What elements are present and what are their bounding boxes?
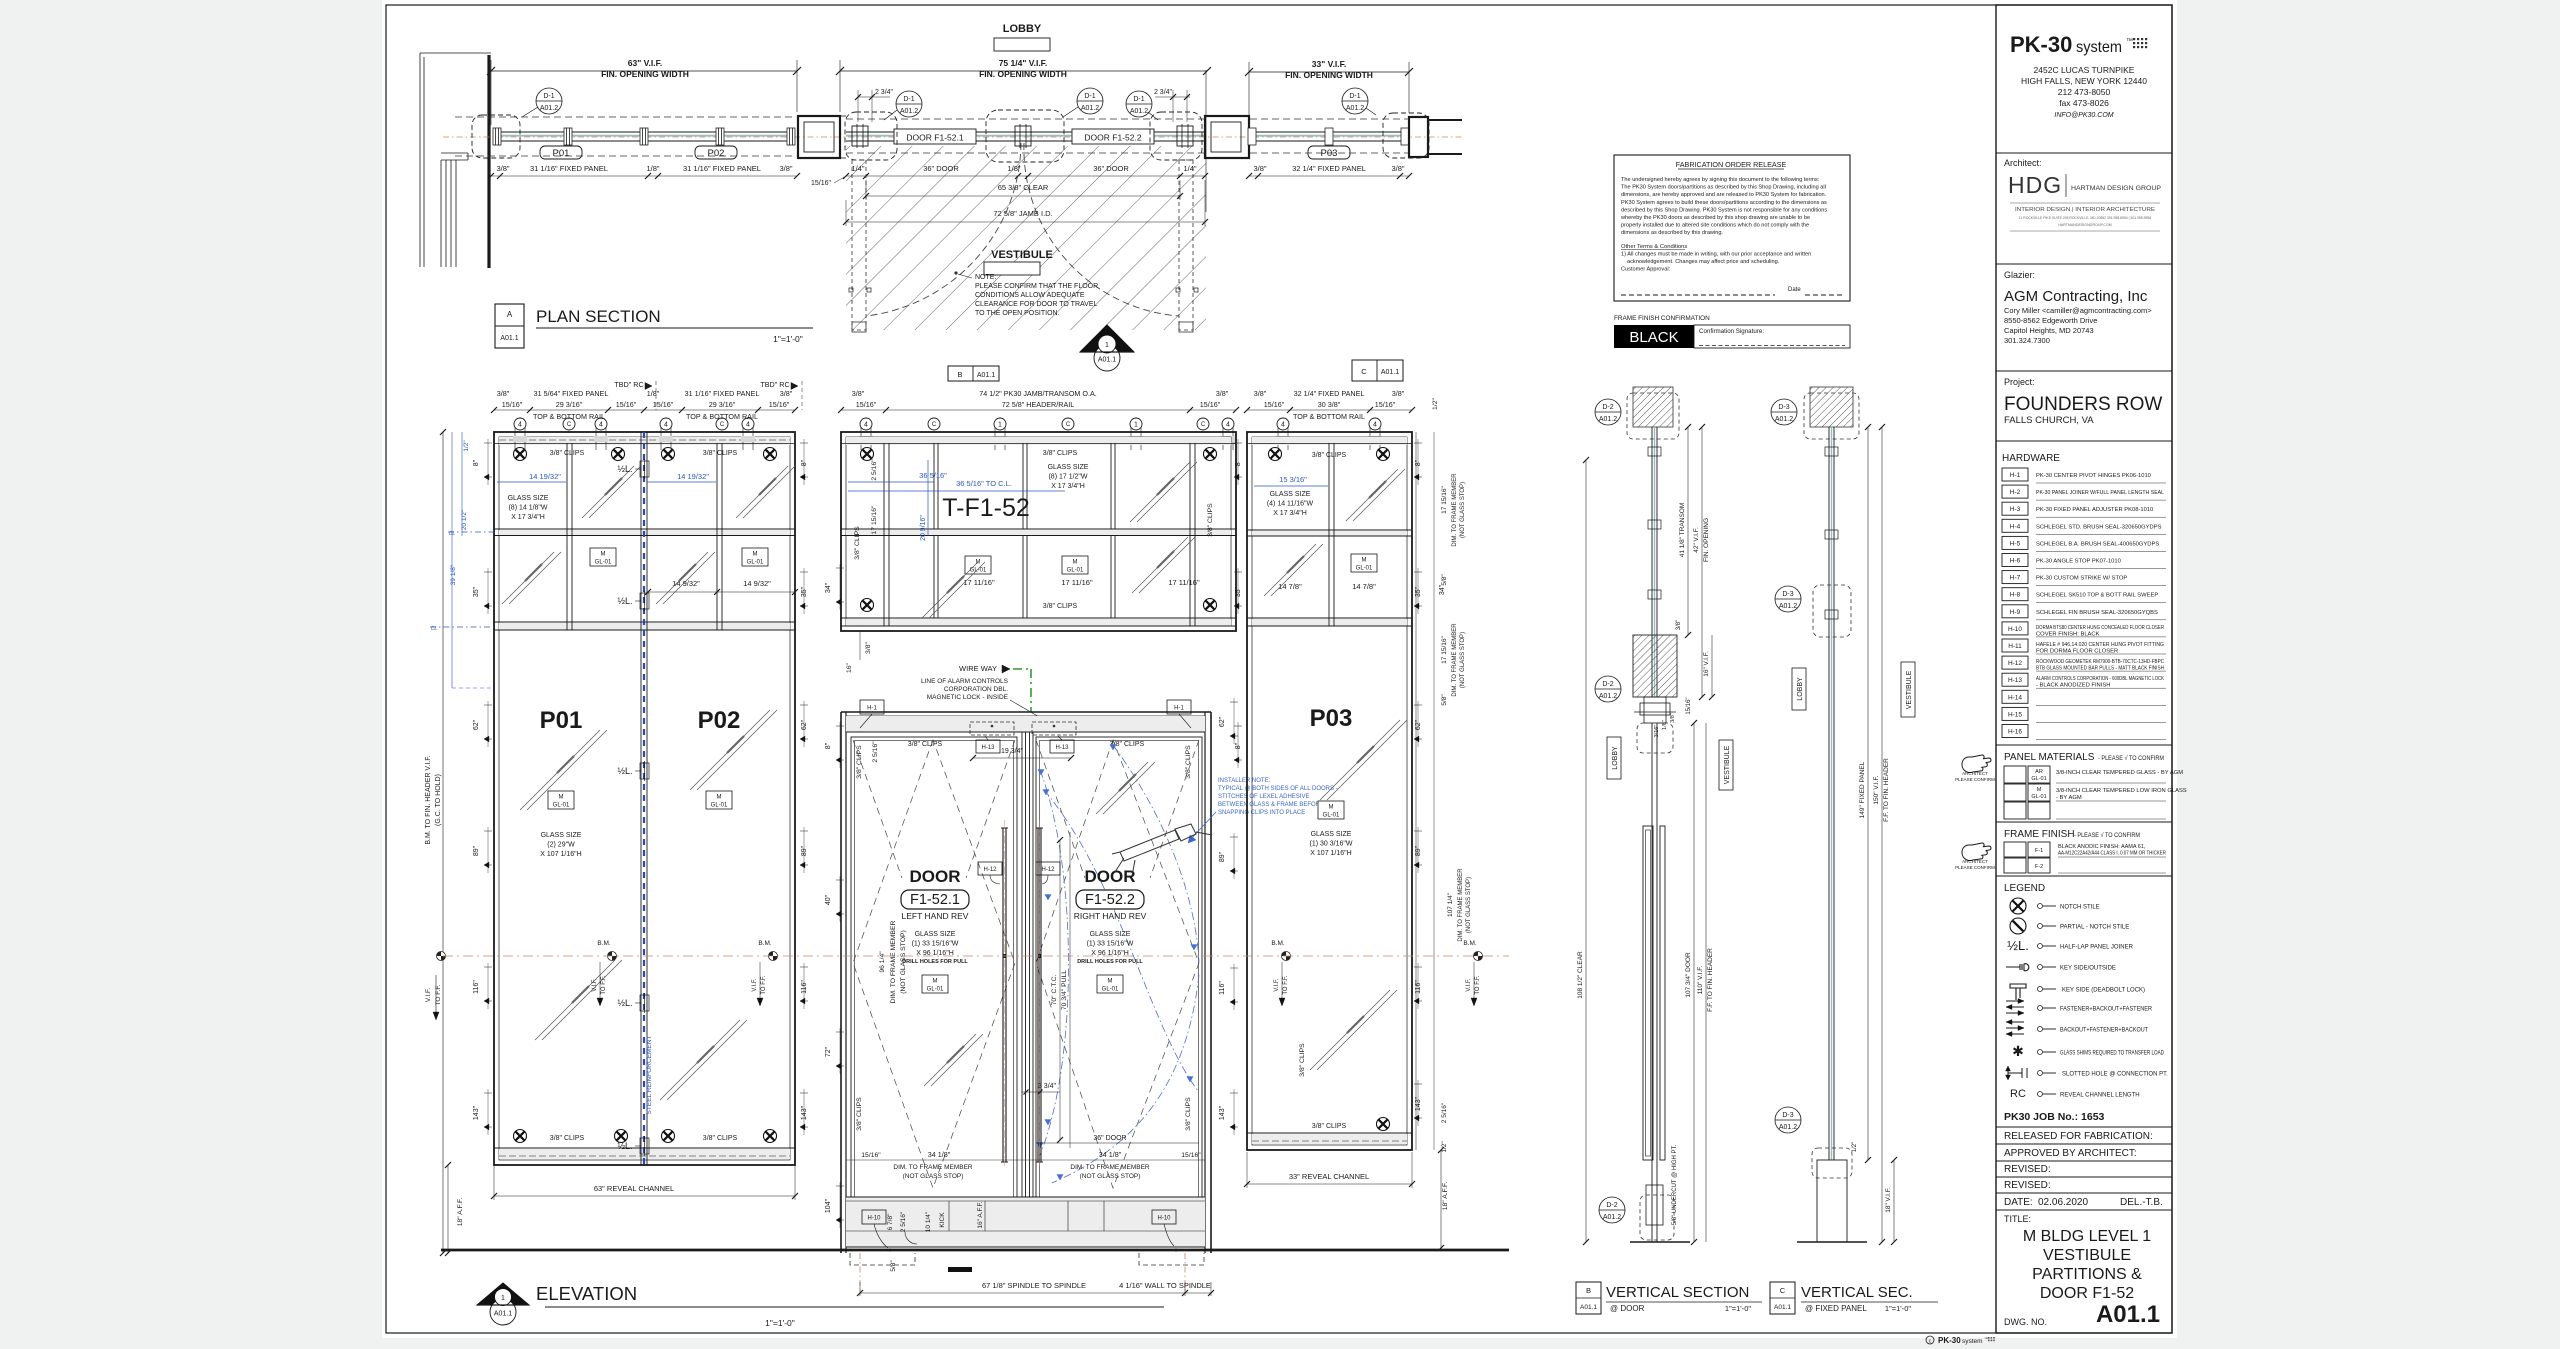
svg-text:HARTMAN DESIGN GROUP: HARTMAN DESIGN GROUP	[2071, 185, 2161, 192]
svg-text:GL-01: GL-01	[711, 803, 728, 809]
svg-text:3/8": 3/8"	[1392, 389, 1405, 398]
svg-text:17 15/16": 17 15/16"	[1441, 486, 1448, 514]
svg-text:SLOTTED HOLE @ CONNECTION PT.: SLOTTED HOLE @ CONNECTION PT.	[2062, 1072, 2168, 1078]
svg-text:Date: Date	[1788, 287, 1801, 293]
svg-text:11 ROCKVILLE PIKE SUITE 205 R: 11 ROCKVILLE PIKE SUITE 205 ROCKVILLE, M…	[2019, 216, 2151, 220]
svg-text:36" DOOR: 36" DOOR	[1093, 1135, 1126, 1142]
svg-text:C: C	[720, 422, 725, 428]
svg-text:6 7/8": 6 7/8"	[887, 1213, 894, 1230]
svg-text:BLACK: BLACK	[1629, 329, 1678, 346]
svg-text:PK30 JOB No.: 1653: PK30 JOB No.: 1653	[2004, 1111, 2105, 1123]
svg-text:D-2: D-2	[1602, 681, 1613, 688]
svg-text:- PLEASE √ TO CONFIRM: - PLEASE √ TO CONFIRM	[2074, 831, 2140, 839]
svg-text:H-9: H-9	[2010, 609, 2021, 616]
svg-text:3/8": 3/8"	[497, 389, 510, 398]
svg-text:4: 4	[664, 422, 668, 429]
svg-text:(NOT GLASS STOP): (NOT GLASS STOP)	[1080, 1173, 1141, 1180]
svg-text:3/8" CLIPS: 3/8" CLIPS	[1185, 745, 1192, 779]
svg-text:LEGEND: LEGEND	[2004, 883, 2045, 894]
svg-text:TO F.F.: TO F.F.	[761, 975, 767, 995]
svg-text:B: B	[957, 370, 962, 379]
svg-text:A01.1: A01.1	[1098, 357, 1116, 364]
svg-text:65 3/8" CLEAR: 65 3/8" CLEAR	[998, 183, 1049, 192]
svg-text:(1) 30 3/16"W: (1) 30 3/16"W	[1310, 841, 1353, 848]
svg-text:104": 104"	[825, 1198, 832, 1213]
svg-text:FABRICATION ORDER RELEASE: FABRICATION ORDER RELEASE	[1676, 160, 1787, 169]
svg-text:T-F1-52: T-F1-52	[942, 494, 1030, 522]
svg-text:A01.1: A01.1	[494, 1311, 512, 1318]
svg-text:AGM Contracting, Inc: AGM Contracting, Inc	[2004, 288, 2148, 305]
svg-text:c: c	[1929, 1339, 1932, 1345]
svg-text:PLEASE CONFIRM: PLEASE CONFIRM	[1955, 777, 1995, 782]
svg-text:3/8" CLIPS: 3/8" CLIPS	[1312, 1123, 1347, 1130]
svg-text:The PK30 System doors/partitio: The PK30 System doors/partitions as desc…	[1621, 185, 1826, 191]
svg-text:(2) 29"W: (2) 29"W	[547, 842, 575, 849]
svg-text:42" V.I.F.: 42" V.I.F.	[1693, 527, 1700, 553]
svg-text:H-1: H-1	[2010, 472, 2021, 479]
svg-text:62": 62"	[473, 719, 480, 730]
svg-text:107 1/4": 107 1/4"	[1447, 892, 1454, 917]
svg-text:15/16": 15/16"	[1375, 400, 1396, 409]
svg-text:39 1/8": 39 1/8"	[450, 564, 457, 585]
svg-text:B.M.: B.M.	[758, 940, 772, 947]
svg-text:19 3/4": 19 3/4"	[1001, 748, 1023, 755]
svg-text:89": 89"	[473, 845, 480, 856]
svg-text:C: C	[1361, 367, 1367, 376]
svg-text:H-4: H-4	[2010, 523, 2021, 530]
svg-text:C: C	[932, 422, 937, 428]
svg-text:DIM. TO FRAME MEMBER: DIM. TO FRAME MEMBER	[1452, 473, 1458, 547]
svg-text:15/16": 15/16"	[861, 1152, 881, 1159]
svg-text:described by this Shop Drawing: described by this Shop Drawing. PK30 Sys…	[1621, 207, 1827, 213]
svg-text:P03: P03	[1321, 148, 1338, 159]
svg-text:(NOT GLASS STOP): (NOT GLASS STOP)	[1466, 877, 1472, 933]
svg-text:1"=1'-0": 1"=1'-0"	[1725, 1304, 1751, 1313]
svg-text:36" DOOR: 36" DOOR	[1093, 164, 1129, 173]
svg-text:system: system	[1962, 1338, 1983, 1345]
svg-text:B.M.: B.M.	[1271, 940, 1285, 947]
svg-text:C: C	[1780, 1286, 1786, 1295]
svg-text:67 1/8" SPINDLE TO SPINDLE: 67 1/8" SPINDLE TO SPINDLE	[982, 1281, 1086, 1290]
svg-text:P03: P03	[1310, 705, 1353, 732]
svg-text:GLASS SHIMS REQUIRED TO TRANSF: GLASS SHIMS REQUIRED TO TRANSFER LOAD	[2060, 1051, 2165, 1057]
svg-text:3/8" CLIPS: 3/8" CLIPS	[703, 450, 738, 457]
svg-text:M: M	[559, 795, 564, 801]
svg-text:Confirmation Signature:: Confirmation Signature:	[1699, 328, 1764, 335]
svg-text:3/8-INCH CLEAR TEMPERED LOW IR: 3/8-INCH CLEAR TEMPERED LOW IRON GLASS	[2056, 788, 2187, 794]
svg-text:72 5/8" JAMB I.D.: 72 5/8" JAMB I.D.	[993, 209, 1052, 218]
svg-text:KEY SIDE/OUTSIDE: KEY SIDE/OUTSIDE	[2060, 966, 2116, 972]
svg-text:32 1/4" FIXED PANEL: 32 1/4" FIXED PANEL	[1294, 389, 1365, 398]
svg-text:V.I.F.: V.I.F.	[752, 978, 758, 991]
svg-text:TYPICAL @ BOTH SIDES OF ALL DO: TYPICAL @ BOTH SIDES OF ALL DOORS -	[1218, 786, 1338, 792]
svg-text:B.M.: B.M.	[1463, 940, 1477, 947]
svg-text:SNAPPING CLIPS INTO PLACE: SNAPPING CLIPS INTO PLACE	[1218, 810, 1305, 816]
svg-text:A01.2: A01.2	[900, 108, 918, 115]
svg-text:INFO@PK30.COM: INFO@PK30.COM	[2054, 112, 2113, 119]
svg-text:31 5/64" FIXED PANEL: 31 5/64" FIXED PANEL	[534, 389, 609, 398]
svg-text:A: A	[507, 310, 513, 319]
svg-text:110" V.I.F.: 110" V.I.F.	[1697, 965, 1704, 994]
svg-text:FOR DORMA FLOOR CLOSER: FOR DORMA FLOOR CLOSER	[2036, 649, 2118, 655]
svg-text:P02: P02	[698, 707, 741, 734]
svg-text:3/8" CLIPS: 3/8" CLIPS	[1312, 452, 1347, 459]
svg-text:212 473-8050: 212 473-8050	[2058, 87, 2111, 97]
svg-text:3/8" CLIPS: 3/8" CLIPS	[856, 745, 863, 779]
svg-text:3/8" CLIPS: 3/8" CLIPS	[550, 1135, 585, 1142]
svg-text:AA-M12C22A42/A44 CLASS I, 0.07: AA-M12C22A42/A44 CLASS I, 0.07 MM OR THI…	[2058, 851, 2166, 857]
svg-text:(NOT GLASS STOP): (NOT GLASS STOP)	[900, 930, 907, 994]
svg-text:½L.: ½L.	[617, 1141, 632, 1151]
svg-text:4: 4	[1373, 422, 1377, 429]
svg-text:1: 1	[1134, 422, 1138, 429]
svg-text:3/8": 3/8"	[1391, 164, 1404, 173]
svg-text:KEY SIDE (DEADBOLT LOCK): KEY SIDE (DEADBOLT LOCK)	[2062, 988, 2145, 994]
svg-text:A01.2: A01.2	[540, 105, 558, 112]
svg-text:P01: P01	[553, 148, 570, 159]
svg-text:H-1: H-1	[1174, 706, 1184, 712]
svg-text:whereby the PK30 doors as desc: whereby the PK30 doors as described by t…	[1620, 215, 1810, 221]
svg-text:3/8" CLIPS: 3/8" CLIPS	[1043, 603, 1078, 610]
svg-text:DIM. TO FRAME MEMBER: DIM. TO FRAME MEMBER	[893, 1164, 973, 1171]
svg-text:1/2": 1/2"	[1441, 1141, 1448, 1153]
svg-text:107 3/4" DOOR: 107 3/4" DOOR	[1685, 952, 1692, 998]
svg-text:REVISED:: REVISED:	[2004, 1180, 2051, 1191]
svg-text:PK-30 FIXED PANEL ADJUSTER P: PK-30 FIXED PANEL ADJUSTER PK08-1010	[2036, 507, 2153, 513]
svg-text:HARDWARE: HARDWARE	[2002, 453, 2060, 464]
svg-text:10 1/4": 10 1/4"	[925, 1211, 932, 1232]
svg-text:GL-01: GL-01	[1323, 813, 1340, 819]
svg-text:F1-52.1: F1-52.1	[910, 892, 960, 908]
svg-text:3/8": 3/8"	[1253, 164, 1266, 173]
svg-text:1"=1'-0": 1"=1'-0"	[765, 1318, 795, 1328]
svg-text:HARTMANDESIGNGROUP.COM: HARTMANDESIGNGROUP.COM	[2058, 223, 2112, 227]
svg-text:17 11/16": 17 11/16"	[1061, 578, 1093, 587]
svg-text:M: M	[753, 552, 758, 558]
svg-text:X 107 1/16"H: X 107 1/16"H	[540, 851, 581, 858]
svg-text:DATE:: DATE:	[2004, 1197, 2033, 1208]
svg-text:KICK: KICK	[939, 1212, 946, 1228]
svg-text:B.M.: B.M.	[597, 940, 611, 947]
svg-text:3/8": 3/8"	[1676, 620, 1682, 630]
svg-text:15/16": 15/16"	[769, 400, 790, 409]
svg-text:2 5/16": 2 5/16"	[871, 459, 878, 481]
svg-text:½L.: ½L.	[617, 998, 632, 1008]
svg-text:PANEL MATERIALS: PANEL MATERIALS	[2004, 752, 2095, 763]
svg-text:2 5/16": 2 5/16"	[1441, 1102, 1448, 1123]
svg-text:PK-30 CUSTOM STRIKE W/ STOP: PK-30 CUSTOM STRIKE W/ STOP	[2036, 576, 2127, 582]
svg-text:15 3/16": 15 3/16"	[1279, 475, 1307, 484]
svg-text:fax 473-8026: fax 473-8026	[2059, 98, 2109, 108]
svg-text:GL-01: GL-01	[553, 803, 570, 809]
svg-text:NOTE:: NOTE:	[975, 274, 996, 281]
svg-text:VESTIBULE: VESTIBULE	[1906, 670, 1913, 709]
svg-text:A01.2: A01.2	[1599, 416, 1617, 423]
svg-text:40": 40"	[825, 894, 832, 905]
svg-text:PARTIAL - NOTCH STILE: PARTIAL - NOTCH STILE	[2060, 925, 2129, 931]
svg-text:✱: ✱	[2012, 1043, 2024, 1059]
svg-text:GLASS SIZE: GLASS SIZE	[1270, 491, 1311, 498]
svg-text:STEEL REINFORCEMENT: STEEL REINFORCEMENT	[646, 1036, 653, 1115]
svg-text:HALF-LAP PANEL JOINER: HALF-LAP PANEL JOINER	[2060, 945, 2134, 951]
svg-text:3/8": 3/8"	[779, 164, 792, 173]
svg-text:DOOR F1-52.1: DOOR F1-52.1	[906, 133, 963, 143]
svg-text:4: 4	[864, 422, 868, 429]
svg-text:A01.2: A01.2	[1599, 693, 1617, 700]
svg-text:A01.1: A01.1	[1580, 1304, 1597, 1311]
svg-text:SCHLEGEL SK510 TOP & BOTT RAIL: SCHLEGEL SK510 TOP & BOTT RAIL SWEEP	[2036, 593, 2158, 599]
svg-text:4: 4	[746, 422, 750, 429]
svg-text:116": 116"	[801, 980, 808, 994]
svg-text:35": 35"	[1235, 586, 1242, 597]
svg-text:15/16": 15/16"	[1264, 400, 1285, 409]
svg-text:GLASS SIZE: GLASS SIZE	[508, 495, 549, 502]
svg-text:17 15/16": 17 15/16"	[1441, 636, 1448, 664]
svg-text:WIRE WAY: WIRE WAY	[959, 664, 997, 673]
svg-text:2 3/4": 2 3/4"	[1154, 89, 1173, 96]
svg-text:(4) 14 11/16"W: (4) 14 11/16"W	[1267, 501, 1314, 508]
svg-text:TITLE:: TITLE:	[2004, 1214, 2031, 1224]
svg-text:DOOR: DOOR	[910, 867, 961, 886]
svg-text:X 107 1/16"H: X 107 1/16"H	[1310, 850, 1351, 857]
svg-text:INSTALLER NOTE:: INSTALLER NOTE:	[1218, 778, 1271, 784]
svg-text:3/8": 3/8"	[780, 389, 793, 398]
svg-text:A01.1: A01.1	[1381, 369, 1399, 376]
svg-text:DIM. TO FRAME MEMBER: DIM. TO FRAME MEMBER	[1452, 623, 1458, 697]
svg-text:H-12: H-12	[983, 867, 997, 873]
svg-text:D-1: D-1	[903, 96, 914, 103]
svg-text:5/8": 5/8"	[1441, 694, 1448, 706]
svg-text:PK-30 PANEL JOINER W/FULL PAN: PK-30 PANEL JOINER W/FULL PANEL LENGTH S…	[2036, 490, 2165, 496]
svg-text:70 3/4" PULL: 70 3/4" PULL	[1061, 970, 1068, 1010]
svg-text:H-8: H-8	[2010, 592, 2021, 599]
svg-text:CL: CL	[431, 626, 438, 632]
svg-text:3/8": 3/8"	[1670, 713, 1676, 723]
svg-text:M: M	[1108, 979, 1113, 985]
svg-text:8": 8"	[801, 459, 808, 466]
svg-text:2 3/4": 2 3/4"	[875, 89, 894, 96]
svg-text:system: system	[2076, 39, 2122, 56]
svg-text:PK30 System agrees to build th: PK30 System agrees to build these doors/…	[1621, 200, 1827, 206]
svg-text:143": 143"	[801, 1105, 808, 1120]
svg-text:70" C.T.C.: 70" C.T.C.	[1051, 975, 1058, 1006]
svg-text:33" REVEAL CHANNEL: 33" REVEAL CHANNEL	[1289, 1172, 1369, 1181]
svg-text:(G.C. TO HOLD): (G.C. TO HOLD)	[435, 774, 442, 826]
svg-text:BTB GLASS MOUNTED BAR PULLS -: BTB GLASS MOUNTED BAR PULLS - MATT BLACK…	[2036, 666, 2164, 672]
svg-text:PK-30: PK-30	[2010, 32, 2072, 57]
svg-text:16": 16"	[846, 662, 853, 673]
svg-text:FIN. OPENING WIDTH: FIN. OPENING WIDTH	[1285, 70, 1373, 80]
svg-text:1/4": 1/4"	[1183, 164, 1196, 173]
svg-text:5/8" UNDERCUT @ HIGH PT.: 5/8" UNDERCUT @ HIGH PT.	[1672, 1144, 1678, 1225]
svg-text:X 17 3/4"H: X 17 3/4"H	[511, 514, 545, 521]
svg-text:P01: P01	[540, 707, 583, 734]
svg-text:H-6: H-6	[2010, 558, 2021, 565]
svg-text:DEL.-T.B.: DEL.-T.B.	[2120, 1197, 2163, 1208]
svg-text:½L.: ½L.	[617, 766, 632, 776]
svg-text:3/8-INCH CLEAR TEMPERED GLASS: 3/8-INCH CLEAR TEMPERED GLASS - BY AGM	[2056, 770, 2183, 776]
svg-text:3/8" CLIPS: 3/8" CLIPS	[1207, 503, 1214, 537]
svg-text:M: M	[717, 795, 722, 801]
svg-text:3/8": 3/8"	[1216, 389, 1229, 398]
svg-text:LOBBY: LOBBY	[1797, 677, 1804, 701]
svg-text:RC: RC	[2010, 1088, 2026, 1100]
svg-text:4 1/16" WALL TO SPINDLE: 4 1/16" WALL TO SPINDLE	[1119, 1281, 1211, 1290]
svg-text:ELEVATION: ELEVATION	[536, 1283, 637, 1304]
svg-text:GL-01: GL-01	[1102, 987, 1119, 993]
svg-text:APPROVED BY ARCHITECT:: APPROVED BY ARCHITECT:	[2004, 1148, 2137, 1159]
svg-text:15/16": 15/16"	[1200, 400, 1221, 409]
svg-text:GL-01: GL-01	[927, 987, 944, 993]
svg-text:H-11: H-11	[2008, 643, 2022, 650]
svg-text:A01.1: A01.1	[500, 335, 518, 342]
svg-text:TO F.F.: TO F.F.	[1475, 975, 1481, 995]
svg-text:DOOR: DOOR	[1085, 867, 1136, 886]
svg-text:F1-52.2: F1-52.2	[1085, 892, 1135, 908]
svg-text:REVISED:: REVISED:	[2004, 1164, 2051, 1175]
svg-text:DIM. TO FRAME MEMBER: DIM. TO FRAME MEMBER	[1070, 1164, 1150, 1171]
svg-text:2452C LUCAS TURNPIKE: 2452C LUCAS TURNPIKE	[2034, 65, 2135, 75]
svg-text:31 1/16" FIXED PANEL: 31 1/16" FIXED PANEL	[685, 389, 760, 398]
svg-text:8550-8562 Edgeworth Drive: 8550-8562 Edgeworth Drive	[2004, 316, 2097, 325]
svg-text:HAFELE # 946.14.020 CENTER HUN: HAFELE # 946.14.020 CENTER HUNG PIVOT FI…	[2036, 642, 2164, 648]
svg-text:5/8": 5/8"	[1441, 574, 1448, 586]
svg-text:- BY AGM: - BY AGM	[2056, 795, 2082, 801]
svg-text:1/8": 1/8"	[646, 164, 659, 173]
svg-text:1: 1	[998, 422, 1002, 429]
svg-text:GL-01: GL-01	[2031, 776, 2046, 782]
svg-text:Other Terms & Conditions: Other Terms & Conditions	[1621, 244, 1687, 250]
svg-text:FIN. OPENING WIDTH: FIN. OPENING WIDTH	[979, 69, 1067, 79]
svg-text:dimensions, are hereby approve: dimensions, are hereby approved and are …	[1621, 192, 1827, 198]
svg-text:X 17 3/4"H: X 17 3/4"H	[1051, 483, 1085, 490]
svg-text:GL-01: GL-01	[1067, 568, 1084, 574]
svg-text:X 17 3/4"H: X 17 3/4"H	[1273, 510, 1307, 517]
svg-text:A01.1: A01.1	[977, 372, 995, 379]
svg-text:A01.2: A01.2	[1603, 1214, 1621, 1221]
svg-text:M: M	[976, 560, 981, 566]
svg-text:4: 4	[1281, 422, 1285, 429]
svg-text:M: M	[1329, 805, 1334, 811]
svg-text:14 7/8": 14 7/8"	[1352, 582, 1376, 591]
svg-text:FALLS CHURCH, VA: FALLS CHURCH, VA	[2004, 415, 2094, 426]
svg-text:72 5/8" HEADER/RAIL: 72 5/8" HEADER/RAIL	[1002, 400, 1074, 409]
svg-text:1/2": 1/2"	[1852, 1142, 1858, 1152]
svg-text:(NOT GLASS STOP): (NOT GLASS STOP)	[1460, 482, 1466, 538]
svg-text:C: C	[1066, 422, 1071, 428]
svg-text:½L.: ½L.	[617, 464, 632, 474]
svg-text:- PLEASE √ TO CONFIRM: - PLEASE √ TO CONFIRM	[2098, 754, 2164, 762]
svg-text:D-1: D-1	[543, 93, 554, 100]
svg-text:34 1/8": 34 1/8"	[1099, 1150, 1122, 1159]
svg-text:M: M	[2037, 787, 2042, 793]
svg-text:PLAN SECTION: PLAN SECTION	[536, 307, 661, 326]
svg-text:H-12: H-12	[1041, 867, 1055, 873]
svg-text:3/8" CLIPS: 3/8" CLIPS	[854, 526, 861, 560]
svg-text:F.F. TO FIN. HEADER: F.F. TO FIN. HEADER	[1707, 948, 1714, 1012]
svg-text:3/8" CLIPS: 3/8" CLIPS	[908, 741, 943, 748]
svg-text:CONDITIONS ALLOW ADEQUATE: CONDITIONS ALLOW ADEQUATE	[975, 292, 1085, 299]
svg-text:TO F.F.: TO F.F.	[1283, 975, 1289, 995]
svg-text:BACKOUT+FASTENER+BACKOUT: BACKOUT+FASTENER+BACKOUT	[2060, 1028, 2148, 1034]
svg-text:(NOT GLASS STOP): (NOT GLASS STOP)	[1460, 632, 1466, 688]
svg-text:GLASS SIZE: GLASS SIZE	[915, 931, 956, 938]
svg-text:VESTIBULE: VESTIBULE	[991, 249, 1053, 261]
svg-text:H-10: H-10	[2008, 626, 2022, 633]
svg-text:A01.2: A01.2	[1130, 108, 1148, 115]
svg-text:acknowledgement. Changes may a: acknowledgement. Changes may affect pric…	[1627, 259, 1780, 265]
svg-text:H-14: H-14	[2008, 694, 2022, 701]
svg-text:M BLDG LEVEL 1: M BLDG LEVEL 1	[2023, 1228, 2151, 1245]
svg-text:3/8": 3/8"	[865, 641, 872, 653]
svg-text:149" FIXED PANEL: 149" FIXED PANEL	[1859, 761, 1866, 818]
svg-text:8": 8"	[825, 742, 832, 749]
svg-text:31 1/16" FIXED PANEL: 31 1/16" FIXED PANEL	[683, 164, 761, 173]
svg-text:GL-01: GL-01	[2031, 794, 2046, 800]
svg-text:1/2": 1/2"	[463, 440, 470, 452]
svg-text:14 19/32": 14 19/32"	[529, 472, 561, 481]
svg-text:3/8" CLIPS: 3/8" CLIPS	[1185, 1097, 1192, 1131]
svg-text:INTERIOR DESIGN | INTERIOR A: INTERIOR DESIGN | INTERIOR ARCHITECTURE	[2015, 207, 2155, 213]
svg-text:1"=1'-0": 1"=1'-0"	[1885, 1304, 1911, 1313]
svg-text:20 9/16": 20 9/16"	[920, 515, 927, 541]
svg-text:3/8" CLIPS: 3/8" CLIPS	[1043, 450, 1078, 457]
svg-text:150" V.I.F.: 150" V.I.F.	[1873, 775, 1880, 804]
svg-text:H-16: H-16	[2008, 729, 2022, 736]
svg-text:5/8": 5/8"	[890, 1260, 897, 1272]
svg-text:LEFT HAND REV: LEFT HAND REV	[902, 911, 969, 921]
svg-text:32 1/4" FIXED PANEL: 32 1/4" FIXED PANEL	[1292, 164, 1366, 173]
svg-text:dimensions as described by thi: dimensions as described by this drawing.	[1621, 230, 1723, 236]
svg-text:3/8" CLIPS: 3/8" CLIPS	[703, 1135, 738, 1142]
svg-text:PLEASE CONFIRM THAT THE FLOOR: PLEASE CONFIRM THAT THE FLOOR	[975, 283, 1098, 290]
svg-text:AR: AR	[2035, 769, 2043, 775]
svg-text:16" V.I.F.: 16" V.I.F.	[1703, 651, 1710, 677]
svg-text:HDG: HDG	[2008, 172, 2062, 198]
svg-text:301.324.7300: 301.324.7300	[2004, 336, 2050, 345]
svg-text:LOBBY: LOBBY	[1612, 746, 1619, 770]
svg-text:Customer Approval:: Customer Approval:	[1621, 267, 1671, 273]
svg-text:(1) 33 15/16"W: (1) 33 15/16"W	[912, 941, 959, 948]
svg-text:A01.2: A01.2	[1775, 416, 1793, 423]
svg-text:ROCKWOOD GEOMETEK RM7900-BTB-7: ROCKWOOD GEOMETEK RM7900-BTB-70CTC-13HD-…	[2036, 659, 2164, 665]
svg-text:30 3/8": 30 3/8"	[1318, 400, 1341, 409]
svg-text:FIN. OPENING WIDTH: FIN. OPENING WIDTH	[601, 69, 689, 79]
svg-text:DIM. TO FRAME MEMBER: DIM. TO FRAME MEMBER	[890, 920, 897, 1003]
svg-text:A01.2: A01.2	[1779, 603, 1797, 610]
svg-text:14 7/8": 14 7/8"	[1278, 582, 1302, 591]
svg-text:C: C	[567, 422, 572, 428]
svg-text:@ DOOR: @ DOOR	[1610, 1304, 1645, 1313]
svg-text:143": 143"	[1219, 1105, 1226, 1120]
svg-text:GL-01: GL-01	[747, 560, 764, 566]
svg-text:1"=1'-0": 1"=1'-0"	[773, 334, 803, 344]
svg-text:36 5/16": 36 5/16"	[919, 471, 947, 480]
svg-text:62": 62"	[1219, 716, 1226, 727]
svg-text:31 1/16" FIXED PANEL: 31 1/16" FIXED PANEL	[530, 164, 608, 173]
svg-text:PK-30 CENTER PIVOT HINGES PK0: PK-30 CENTER PIVOT HINGES PK06-1010	[2036, 473, 2151, 479]
svg-text:(1) 33 15/16"W: (1) 33 15/16"W	[1087, 941, 1134, 948]
svg-text:GL-01: GL-01	[1356, 566, 1373, 572]
svg-text:18" A.F.F.: 18" A.F.F.	[1442, 1182, 1449, 1211]
svg-text:A01.2: A01.2	[1081, 105, 1099, 112]
svg-text:2 5/16": 2 5/16"	[900, 1211, 907, 1232]
svg-text:VERTICAL SEC.: VERTICAL SEC.	[1801, 1284, 1913, 1301]
svg-text:V.I.F.: V.I.F.	[592, 978, 598, 991]
svg-text:34 1/8": 34 1/8"	[928, 1150, 951, 1159]
svg-text:(NOT GLASS STOP): (NOT GLASS STOP)	[903, 1173, 964, 1180]
svg-text:REVEAL CHANNEL LENGTH: REVEAL CHANNEL LENGTH	[2060, 1093, 2140, 1099]
